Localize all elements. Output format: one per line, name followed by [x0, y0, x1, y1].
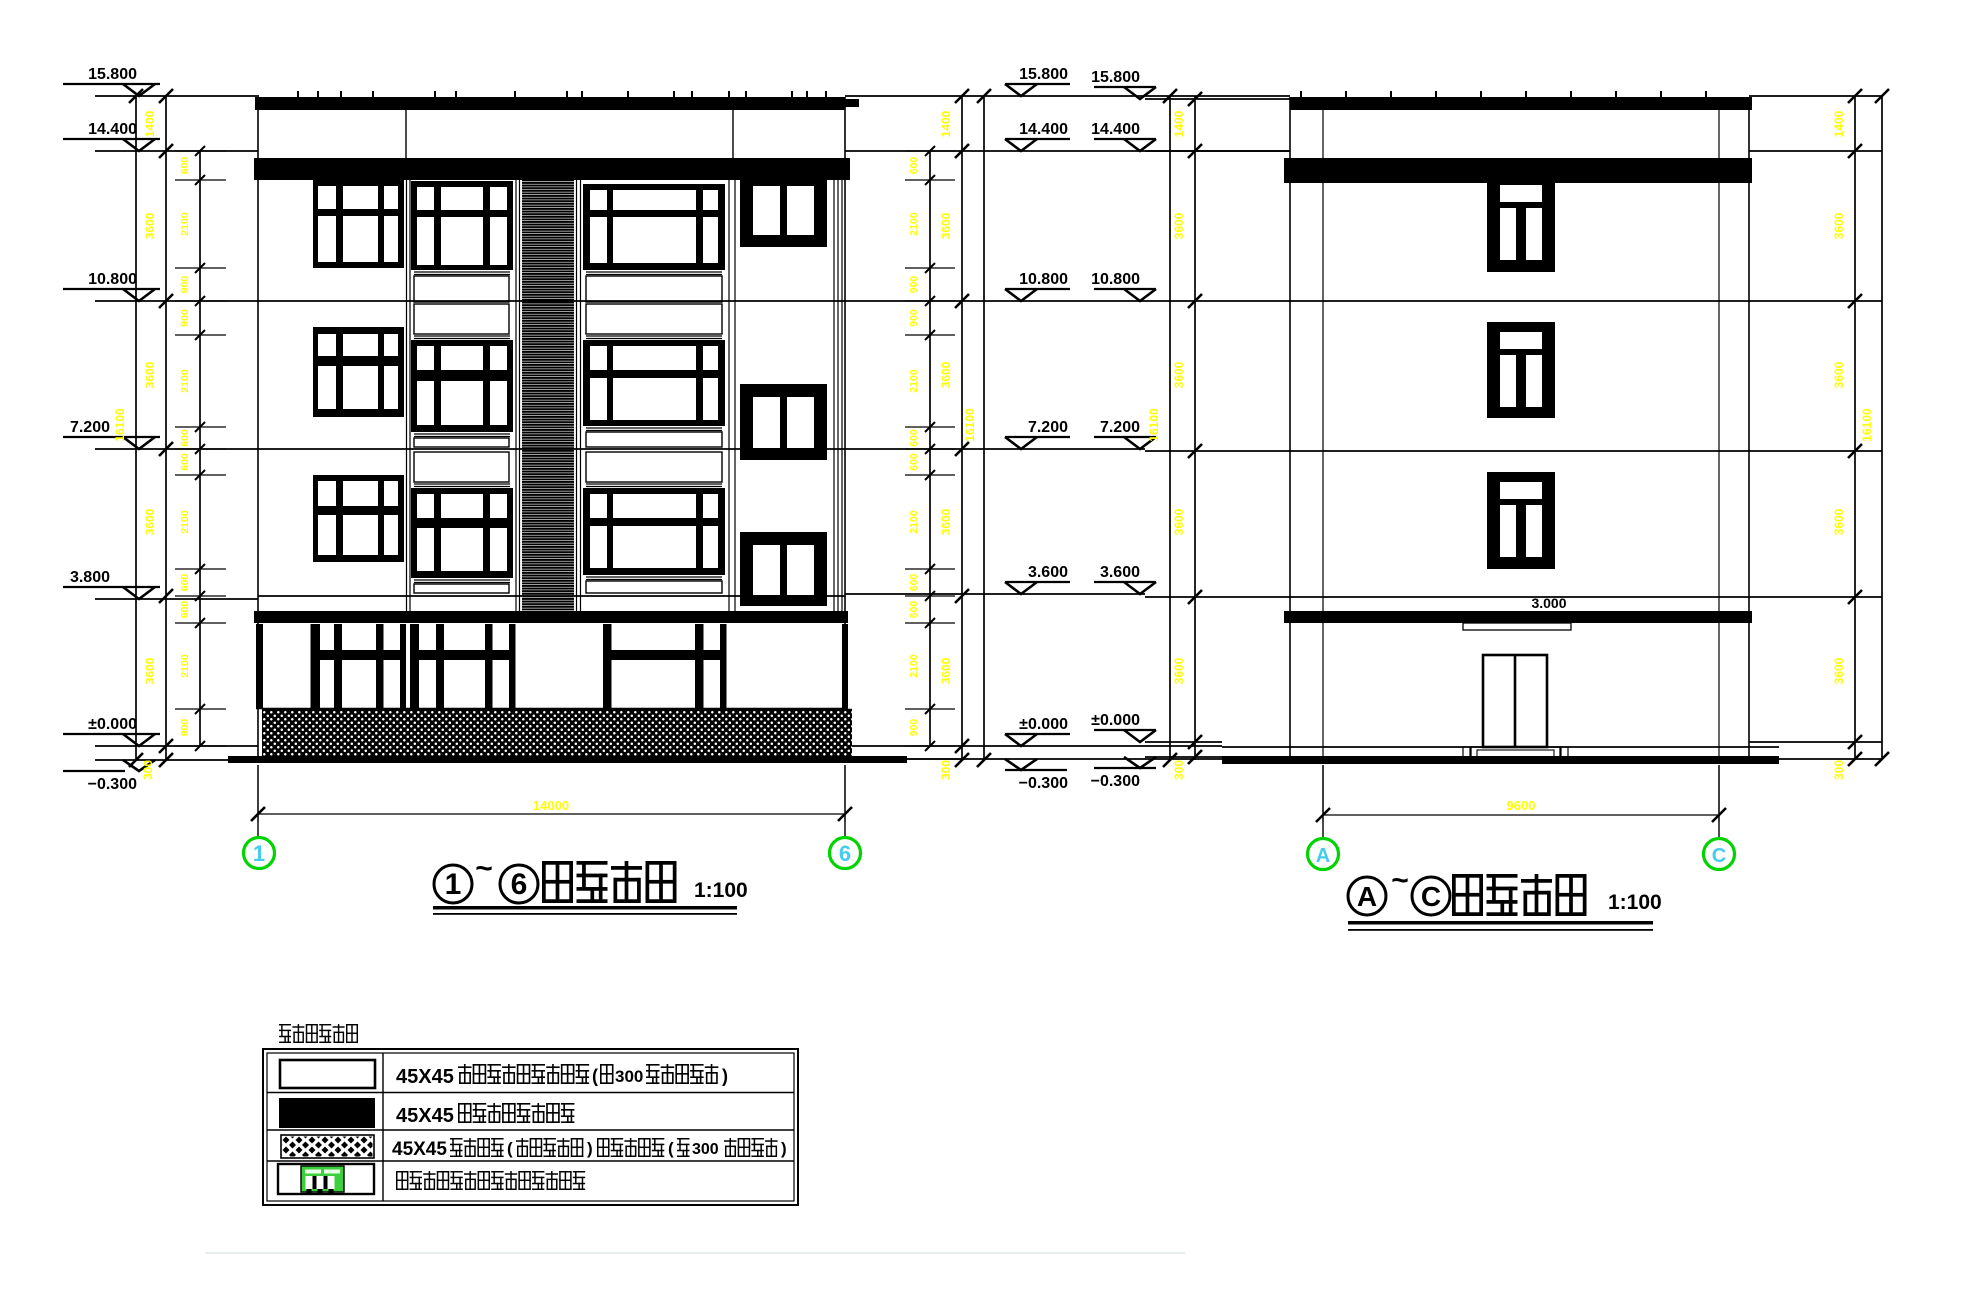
- svg-text:600: 600: [908, 429, 920, 447]
- svg-text:7.200: 7.200: [1100, 419, 1140, 436]
- svg-text:−0.300: −0.300: [88, 776, 137, 793]
- svg-text:1: 1: [253, 841, 265, 866]
- svg-text:14.400: 14.400: [1019, 121, 1068, 138]
- svg-text:±0.000: ±0.000: [1091, 712, 1140, 729]
- svg-text:2100: 2100: [908, 369, 920, 393]
- svg-text:3600: 3600: [1172, 361, 1186, 388]
- svg-text:600: 600: [179, 574, 191, 592]
- svg-text:300: 300: [141, 760, 155, 780]
- svg-text:A: A: [1316, 845, 1330, 867]
- svg-text:(: (: [507, 1139, 513, 1158]
- svg-text:): ): [722, 1066, 728, 1086]
- svg-text:600: 600: [179, 429, 191, 447]
- svg-text:3600: 3600: [143, 508, 157, 535]
- svg-text:45X45: 45X45: [392, 1139, 447, 1160]
- svg-text:(: (: [592, 1066, 598, 1086]
- svg-text:15.800: 15.800: [1091, 69, 1140, 86]
- svg-text:7.200: 7.200: [70, 419, 110, 436]
- svg-text:900: 900: [908, 309, 920, 327]
- svg-text:(: (: [668, 1139, 674, 1158]
- svg-text:1400: 1400: [143, 110, 157, 137]
- svg-text:6: 6: [839, 841, 851, 866]
- svg-text:45X45: 45X45: [396, 1105, 454, 1127]
- svg-text:15.800: 15.800: [88, 66, 137, 83]
- svg-text:3600: 3600: [1832, 361, 1846, 388]
- svg-text:900: 900: [179, 309, 191, 327]
- svg-text:3600: 3600: [939, 508, 953, 535]
- svg-text:6: 6: [511, 868, 528, 901]
- svg-text:3600: 3600: [143, 361, 157, 388]
- svg-text:7.200: 7.200: [1028, 419, 1068, 436]
- svg-text:600: 600: [179, 157, 191, 175]
- svg-text:600: 600: [179, 601, 191, 619]
- svg-text:3600: 3600: [1172, 508, 1186, 535]
- svg-text:3600: 3600: [939, 657, 953, 684]
- svg-text:A: A: [1357, 881, 1377, 912]
- svg-text:1:100: 1:100: [694, 879, 748, 902]
- svg-text:900: 900: [908, 719, 920, 737]
- svg-text:16100: 16100: [1147, 408, 1161, 442]
- svg-text:600: 600: [908, 157, 920, 175]
- svg-text:45X45: 45X45: [396, 1066, 454, 1088]
- svg-text:1400: 1400: [939, 110, 953, 137]
- svg-text:3600: 3600: [939, 212, 953, 239]
- svg-text:2100: 2100: [179, 369, 191, 393]
- svg-text:2100: 2100: [179, 654, 191, 678]
- svg-text:14.400: 14.400: [1091, 121, 1140, 138]
- svg-text:3.800: 3.800: [70, 569, 110, 586]
- svg-text:900: 900: [179, 276, 191, 294]
- svg-text:16100: 16100: [963, 408, 977, 442]
- svg-text:~: ~: [475, 852, 493, 885]
- svg-text:1: 1: [445, 868, 462, 901]
- svg-text:600: 600: [908, 601, 920, 619]
- svg-text:2100: 2100: [908, 654, 920, 678]
- svg-text:16100: 16100: [1860, 408, 1874, 442]
- svg-text:2100: 2100: [908, 510, 920, 534]
- svg-text:−0.300: −0.300: [1091, 773, 1140, 790]
- svg-text:~: ~: [1391, 864, 1409, 897]
- svg-text:300: 300: [615, 1067, 643, 1086]
- svg-text:9600: 9600: [1507, 798, 1536, 813]
- svg-text:10.800: 10.800: [1019, 271, 1068, 288]
- svg-text:−0.300: −0.300: [1019, 775, 1068, 792]
- svg-text:C: C: [1712, 845, 1726, 867]
- svg-text:300: 300: [1172, 760, 1186, 780]
- svg-text:): ): [587, 1139, 593, 1158]
- svg-text:2100: 2100: [908, 212, 920, 236]
- svg-text:14000: 14000: [533, 798, 569, 813]
- svg-text:1:100: 1:100: [1608, 891, 1662, 914]
- svg-text:3600: 3600: [1832, 508, 1846, 535]
- svg-text:C: C: [1421, 881, 1441, 912]
- svg-text:14.400: 14.400: [88, 121, 137, 138]
- svg-text:): ): [781, 1139, 787, 1158]
- svg-text:300: 300: [939, 760, 953, 780]
- svg-text:3600: 3600: [1172, 657, 1186, 684]
- svg-text:±0.000: ±0.000: [1019, 716, 1068, 733]
- svg-text:1400: 1400: [1832, 110, 1846, 137]
- svg-text:3600: 3600: [939, 361, 953, 388]
- svg-text:10.800: 10.800: [88, 271, 137, 288]
- svg-text:600: 600: [179, 453, 191, 471]
- svg-text:600: 600: [908, 574, 920, 592]
- svg-text:600: 600: [908, 453, 920, 471]
- svg-text:300: 300: [692, 1141, 719, 1158]
- svg-text:16100: 16100: [113, 408, 127, 442]
- svg-text:3600: 3600: [143, 212, 157, 239]
- svg-text:10.800: 10.800: [1091, 271, 1140, 288]
- svg-text:900: 900: [179, 719, 191, 737]
- svg-text:3.000: 3.000: [1531, 595, 1566, 611]
- svg-text:3600: 3600: [1832, 212, 1846, 239]
- svg-text:2100: 2100: [179, 510, 191, 534]
- svg-text:3600: 3600: [1172, 212, 1186, 239]
- svg-text:15.800: 15.800: [1019, 66, 1068, 83]
- svg-text:3.600: 3.600: [1028, 564, 1068, 581]
- svg-text:±0.000: ±0.000: [88, 716, 137, 733]
- svg-text:900: 900: [908, 276, 920, 294]
- svg-text:1400: 1400: [1172, 110, 1186, 137]
- svg-text:2100: 2100: [179, 212, 191, 236]
- svg-text:3.600: 3.600: [1100, 564, 1140, 581]
- svg-text:3600: 3600: [1832, 657, 1846, 684]
- svg-text:300: 300: [1832, 760, 1846, 780]
- svg-text:3600: 3600: [143, 657, 157, 684]
